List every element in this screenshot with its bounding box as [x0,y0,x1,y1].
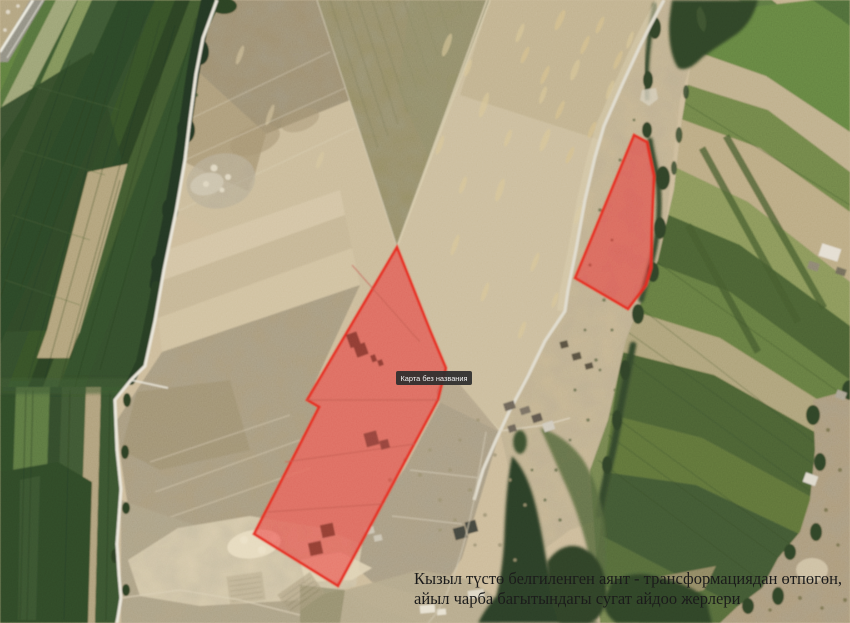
svg-text:Кызыл түстө белгиленген аянт -: Кызыл түстө белгиленген аянт - трансформ… [414,569,842,588]
svg-text:айыл чарба багытындагы сугат а: айыл чарба багытындагы сугат айдоо жерле… [414,589,741,608]
svg-text:Карта без названия: Карта без названия [400,374,467,383]
